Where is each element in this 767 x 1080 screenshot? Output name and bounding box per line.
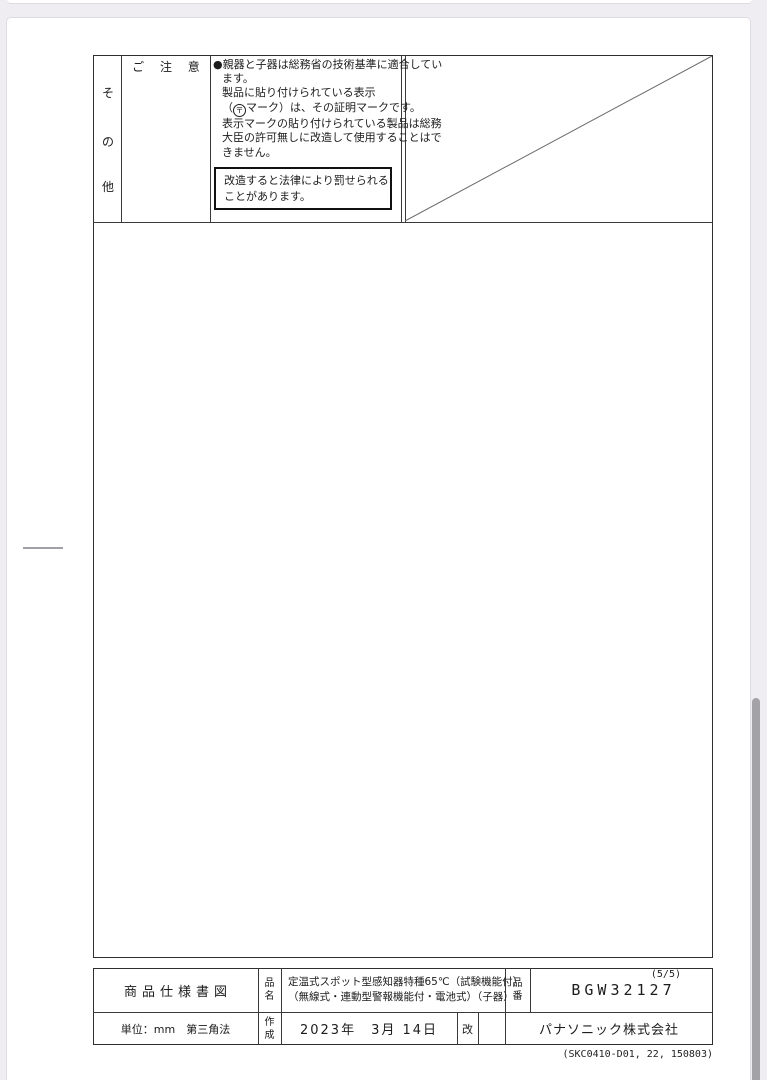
- label-char: 番: [513, 990, 523, 1003]
- diagonal-strike: [405, 56, 712, 221]
- previous-page-edge: [7, 0, 752, 4]
- notice-line: 大臣の許可無しに改造して使用することはで: [213, 131, 413, 145]
- conformity-mark-icon: 〒: [233, 104, 246, 117]
- warning-line: 改造すると法律により罰せられる: [224, 173, 390, 189]
- created-date: 2023年 3月 14日: [281, 1012, 457, 1045]
- product-number: BGW32127: [530, 981, 713, 999]
- label-char: 作: [265, 1016, 275, 1029]
- page-center-mark: [23, 547, 63, 549]
- product-name-line2: （無線式・連動型警報機能付・電池式）（子器）: [288, 990, 514, 1005]
- label-char: 品: [513, 977, 523, 990]
- notice-line-with-mark: （〒マーク）は、その証明マークです。: [213, 101, 413, 118]
- created-label: 作 成: [258, 1012, 281, 1045]
- product-name-line1: 定温式スポット型感知器特種65℃（試験機能付）: [288, 975, 523, 990]
- notice-line: 製品に貼り付けられている表示: [213, 86, 413, 100]
- label-char: 成: [265, 1029, 275, 1042]
- notice-line: ます。: [213, 72, 413, 86]
- section-label-sonota-char: そ: [99, 84, 117, 101]
- units-note: 単位：mm 第三角法: [93, 1012, 258, 1045]
- mark-line-prefix: （: [222, 101, 233, 114]
- label-char: 名: [265, 990, 275, 1003]
- notice-header: ご 注 意: [122, 58, 210, 75]
- product-name-label: 品 名: [258, 968, 281, 1012]
- divider: [210, 55, 211, 222]
- revision-label: 改: [457, 1012, 478, 1045]
- warning-box: 改造すると法律により罰せられる ことがあります。: [214, 167, 392, 210]
- product-name: 定温式スポット型感知器特種65℃（試験機能付） （無線式・連動型警報機能付・電池…: [281, 968, 505, 1012]
- section-label-sonota-char: 他: [99, 178, 117, 195]
- label-char: 品: [265, 977, 275, 990]
- section-label-sonota-char: の: [99, 133, 117, 150]
- document-type-title: 商品仕様書図: [93, 968, 258, 1012]
- notice-line: 表示マークの貼り付けられている製品は総務: [213, 117, 413, 131]
- document-code: (SKC0410-D01, 22, 150803): [562, 1049, 713, 1060]
- page-indicator: (5/5): [530, 968, 713, 980]
- revision-value-empty: [478, 1012, 505, 1045]
- warning-line: ことがあります。: [224, 189, 390, 205]
- notice-text: ●親器と子器は総務省の技術基準に適合してい ます。 製品に貼り付けられている表示…: [213, 58, 413, 160]
- divider: [93, 222, 713, 223]
- product-number-cell: (5/5) BGW32127: [530, 968, 713, 1012]
- notice-line: ●親器と子器は総務省の技術基準に適合してい: [213, 58, 413, 72]
- mark-line-suffix: マーク）は、その証明マークです。: [246, 101, 421, 114]
- pdf-viewer-canvas: そ の 他 ご 注 意 ●親器と子器は総務省の技術基準に適合してい ます。 製品…: [0, 0, 767, 1080]
- divider: [121, 55, 122, 222]
- company-name: パナソニック株式会社: [505, 1012, 713, 1045]
- vertical-scrollbar-thumb[interactable]: [752, 698, 760, 1080]
- notice-line: きません。: [213, 146, 413, 160]
- product-number-label: 品 番: [505, 968, 530, 1012]
